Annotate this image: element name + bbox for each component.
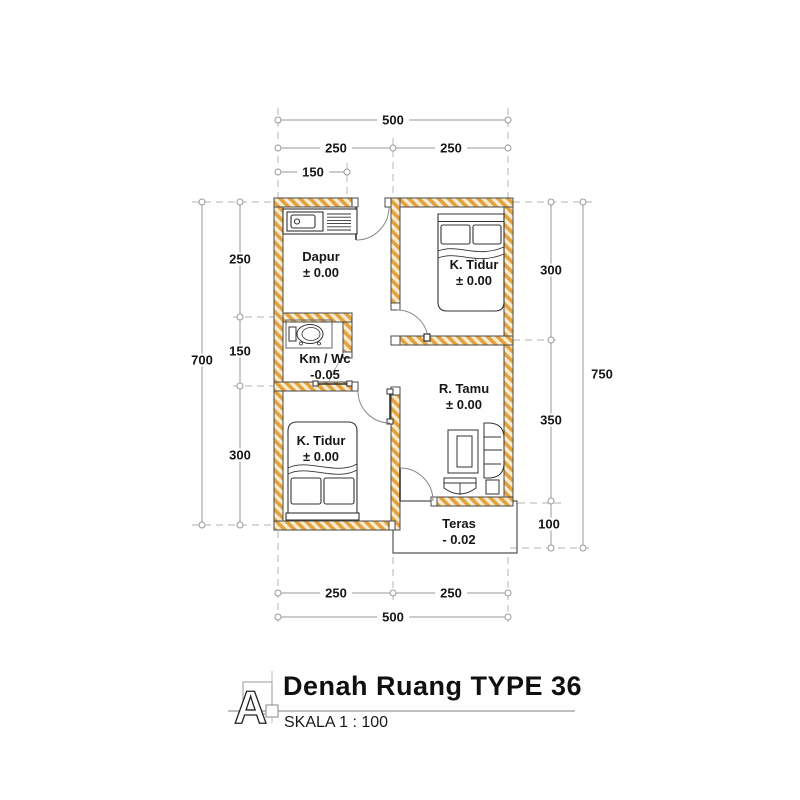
room-name: K. Tidur [450,257,499,273]
dim-bottom-right: 250 [435,587,467,600]
room-name: K. Tidur [297,433,346,449]
room-name: R. Tamu [439,381,489,397]
room-level: ± 0.00 [439,397,489,413]
long-sofa-icon [484,423,504,478]
dim-top-right: 250 [435,142,467,155]
page-title: Denah Ruang TYPE 36 [283,671,582,702]
dim-bottom-total: 500 [377,611,409,624]
room-level: ± 0.00 [450,273,499,289]
wall-middle-lower [391,395,400,530]
wall-right [504,198,513,506]
front-door [400,468,433,501]
dim-right-teras: 100 [533,518,565,531]
wall-middle-upper [391,198,400,310]
wall-top-left [274,198,352,207]
room-name: Km / Wc [299,351,350,367]
side-table-icon [486,480,499,494]
room-label-teras: Teras - 0.02 [442,516,476,549]
room-name: Dapur [302,249,340,265]
dashed-extension-lines [192,108,592,622]
wall-kmwc-top [283,313,352,322]
kitchen-sink-icon [283,209,357,234]
dim-left-kmwc: 150 [224,345,256,358]
bedroom-bottom-door [358,389,393,424]
dim-top-left: 250 [320,142,352,155]
dim-left-total: 700 [186,354,218,367]
dim-top-total: 500 [377,114,409,127]
scale-label: SKALA 1 : 100 [284,714,388,732]
wall-rtamu-bottom [437,497,513,506]
toilet-icon [286,320,332,348]
room-level: ± 0.00 [297,449,346,465]
wall-kmwc-east [343,322,352,352]
section-marker-square [266,705,278,717]
dim-top-kitchen: 150 [297,166,329,179]
coffee-table-top-icon [457,436,472,467]
room-label-kmwc: Km / Wc -0.05 [299,351,350,384]
wall-rtamu-top [391,336,513,345]
room-label-ktidur-atas: K. Tidur ± 0.00 [450,257,499,290]
wall-bottom [274,521,395,530]
section-marker-letter: A [234,681,267,733]
back-door [356,207,389,240]
dim-left-ktidur: 300 [224,449,256,462]
dim-right-total: 750 [586,368,618,381]
sofa-set-icon [444,423,504,495]
wall-top-right [391,198,513,207]
room-level: ± 0.00 [302,265,340,281]
room-label-dapur: Dapur ± 0.00 [302,249,340,282]
room-label-ktidur-bawah: K. Tidur ± 0.00 [297,433,346,466]
dim-right-rtamu: 350 [535,414,567,427]
room-level: - 0.02 [442,532,476,548]
dim-right-ktidur: 300 [535,264,567,277]
room-label-rtamu: R. Tamu ± 0.00 [439,381,489,414]
wall-left [274,198,283,530]
dim-left-dapur: 250 [224,253,256,266]
room-level: -0.05 [299,367,350,383]
room-name: Teras [442,516,476,532]
floor-plan-canvas: A 500 250 250 150 250 150 300 700 300 35… [0,0,800,800]
dim-bottom-left: 250 [320,587,352,600]
